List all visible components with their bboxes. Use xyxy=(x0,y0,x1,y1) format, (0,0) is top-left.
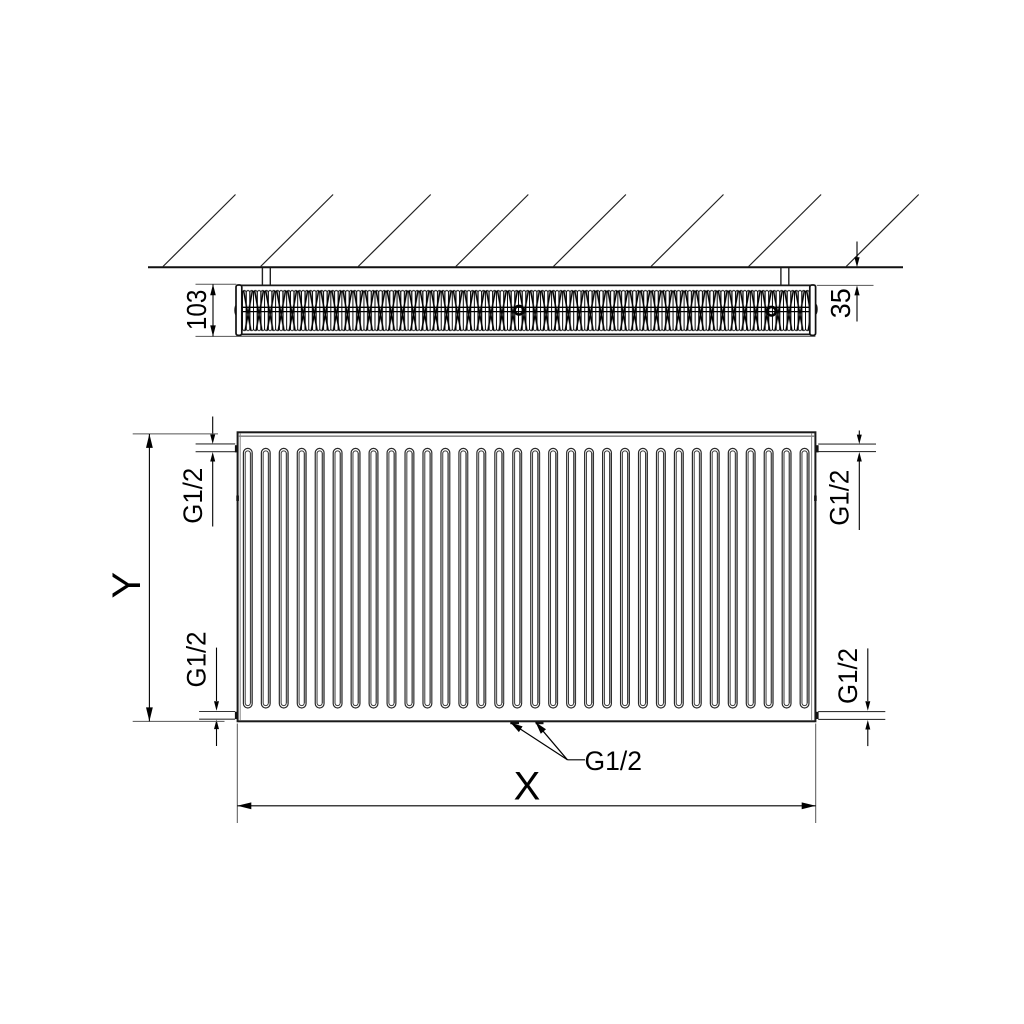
svg-text:G1/2: G1/2 xyxy=(585,746,643,776)
svg-text:35: 35 xyxy=(825,288,856,318)
svg-text:G1/2: G1/2 xyxy=(825,470,855,526)
svg-text:G1/2: G1/2 xyxy=(833,648,863,704)
svg-text:G1/2: G1/2 xyxy=(178,468,208,524)
svg-text:G1/2: G1/2 xyxy=(182,632,212,688)
svg-text:103: 103 xyxy=(181,290,212,331)
svg-text:X: X xyxy=(514,765,541,809)
svg-text:Y: Y xyxy=(105,572,149,599)
